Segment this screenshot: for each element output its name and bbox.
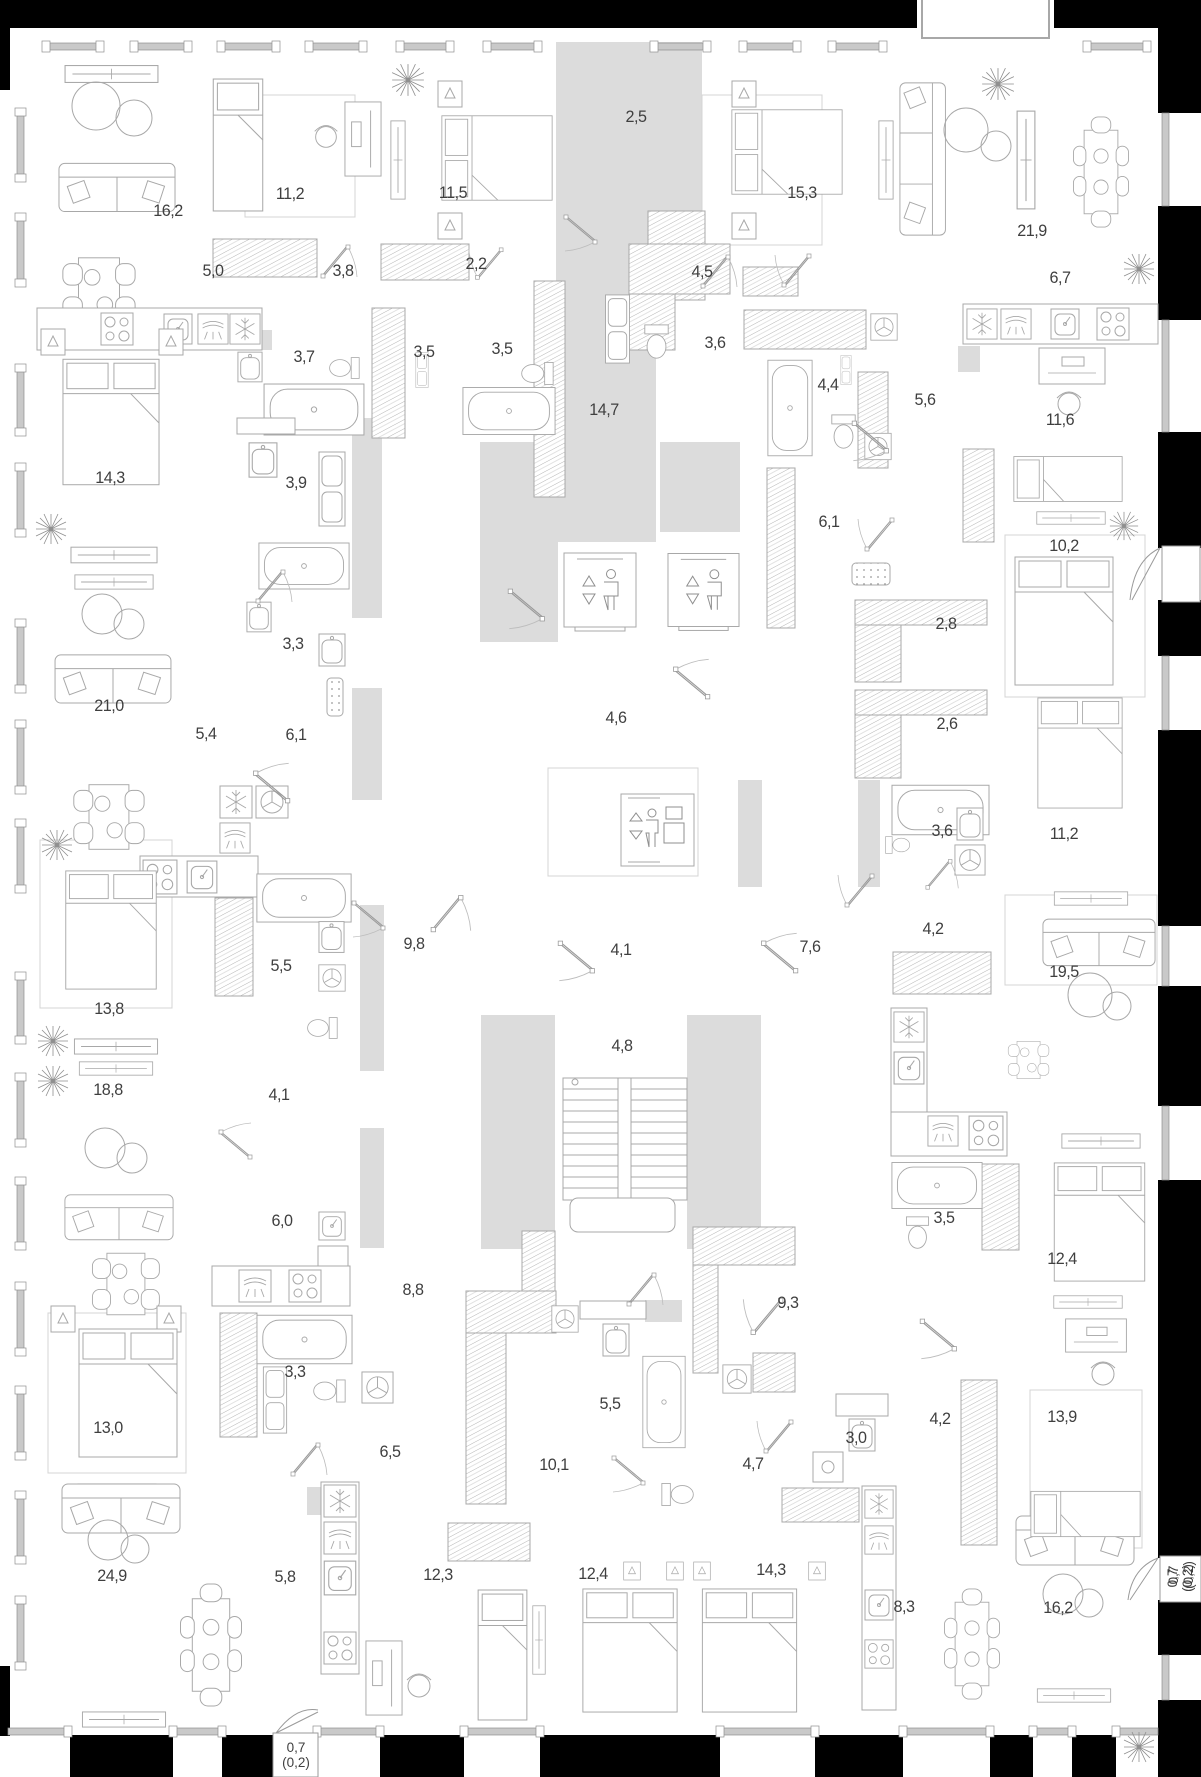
room-area-label: 14,3 [95,468,125,488]
room-area-label: 5,5 [270,956,291,976]
room-area-label: 14,3 [756,1560,786,1580]
room-area-label: 3,6 [931,821,952,841]
room-area-label: 4,2 [929,1409,950,1429]
room-area-label: 24,9 [97,1566,127,1586]
room-area-label: 5,6 [914,390,935,410]
room-area-label: 6,1 [818,512,839,532]
room-area-label: 5,0 [202,261,223,281]
room-area-label: 13,9 [1047,1407,1077,1427]
room-area-label: 8,8 [402,1280,423,1300]
room-area-label: 9,8 [403,934,424,954]
room-area-label: 11,5 [439,183,467,203]
room-area-label: 16,2 [153,201,183,221]
room-area-label: 3,7 [293,347,314,367]
room-area-label: 3,5 [933,1208,954,1228]
room-area-label: 6,1 [285,725,306,745]
room-area-label: 4,6 [605,708,626,728]
room-area-label: 4,4 [817,375,838,395]
room-area-label: 10,1 [539,1455,569,1475]
room-area-label: 12,4 [578,1564,608,1584]
room-area-label: 21,9 [1017,221,1047,241]
room-area-label: 5,5 [599,1394,620,1414]
room-area-label: 16,2 [1043,1598,1073,1618]
balcony-area-label: 0,7(0,2) [1165,1564,1195,1592]
room-area-label: 4,1 [610,940,631,960]
room-area-label: 14,7 [589,400,619,420]
room-area-label: 11,2 [1050,824,1078,844]
room-area-label: 2,5 [625,107,646,127]
room-area-label: 15,3 [787,183,817,203]
room-area-label: 18,8 [93,1080,123,1100]
room-area-label: 4,2 [922,919,943,939]
room-area-label: 4,7 [742,1454,763,1474]
room-area-label: 2,8 [935,614,956,634]
room-area-label: 6,7 [1049,268,1070,288]
room-area-label: 3,6 [704,333,725,353]
room-area-label: 6,5 [379,1442,400,1462]
room-area-label: 13,8 [94,999,124,1019]
room-area-label: 5,8 [274,1567,295,1587]
room-area-label: 3,3 [282,634,303,654]
room-area-label: 3,5 [413,342,434,362]
room-area-label: 8,3 [893,1597,914,1617]
room-area-label: 3,3 [284,1362,305,1382]
room-area-label: 3,9 [285,473,306,493]
room-area-label: 7,6 [799,937,820,957]
room-area-label: 9,3 [777,1293,798,1313]
room-area-label: 19,5 [1049,962,1079,982]
floor-plan: 16,211,211,52,515,321,95,03,82,24,56,73,… [0,0,1201,1777]
room-area-label: 3,0 [845,1428,866,1448]
room-area-label: 2,6 [936,714,957,734]
room-area-label: 4,8 [611,1036,632,1056]
balcony-area-label: 0,7(0,2) [282,1740,310,1770]
room-area-label: 4,5 [691,262,712,282]
room-area-label: 3,8 [332,261,353,281]
room-area-label: 12,4 [1047,1249,1077,1269]
room-area-label: 13,0 [93,1418,123,1438]
room-area-label: 11,6 [1046,410,1074,430]
room-area-label: 6,0 [271,1211,292,1231]
room-labels-layer: 16,211,211,52,515,321,95,03,82,24,56,73,… [0,0,1201,1777]
room-area-label: 11,2 [276,184,304,204]
room-area-label: 21,0 [94,696,124,716]
room-area-label: 12,3 [423,1565,453,1585]
room-area-label: 3,5 [491,339,512,359]
room-area-label: 10,2 [1049,536,1079,556]
room-area-label: 4,1 [268,1085,289,1105]
room-area-label: 5,4 [195,724,216,744]
room-area-label: 2,2 [465,254,486,274]
